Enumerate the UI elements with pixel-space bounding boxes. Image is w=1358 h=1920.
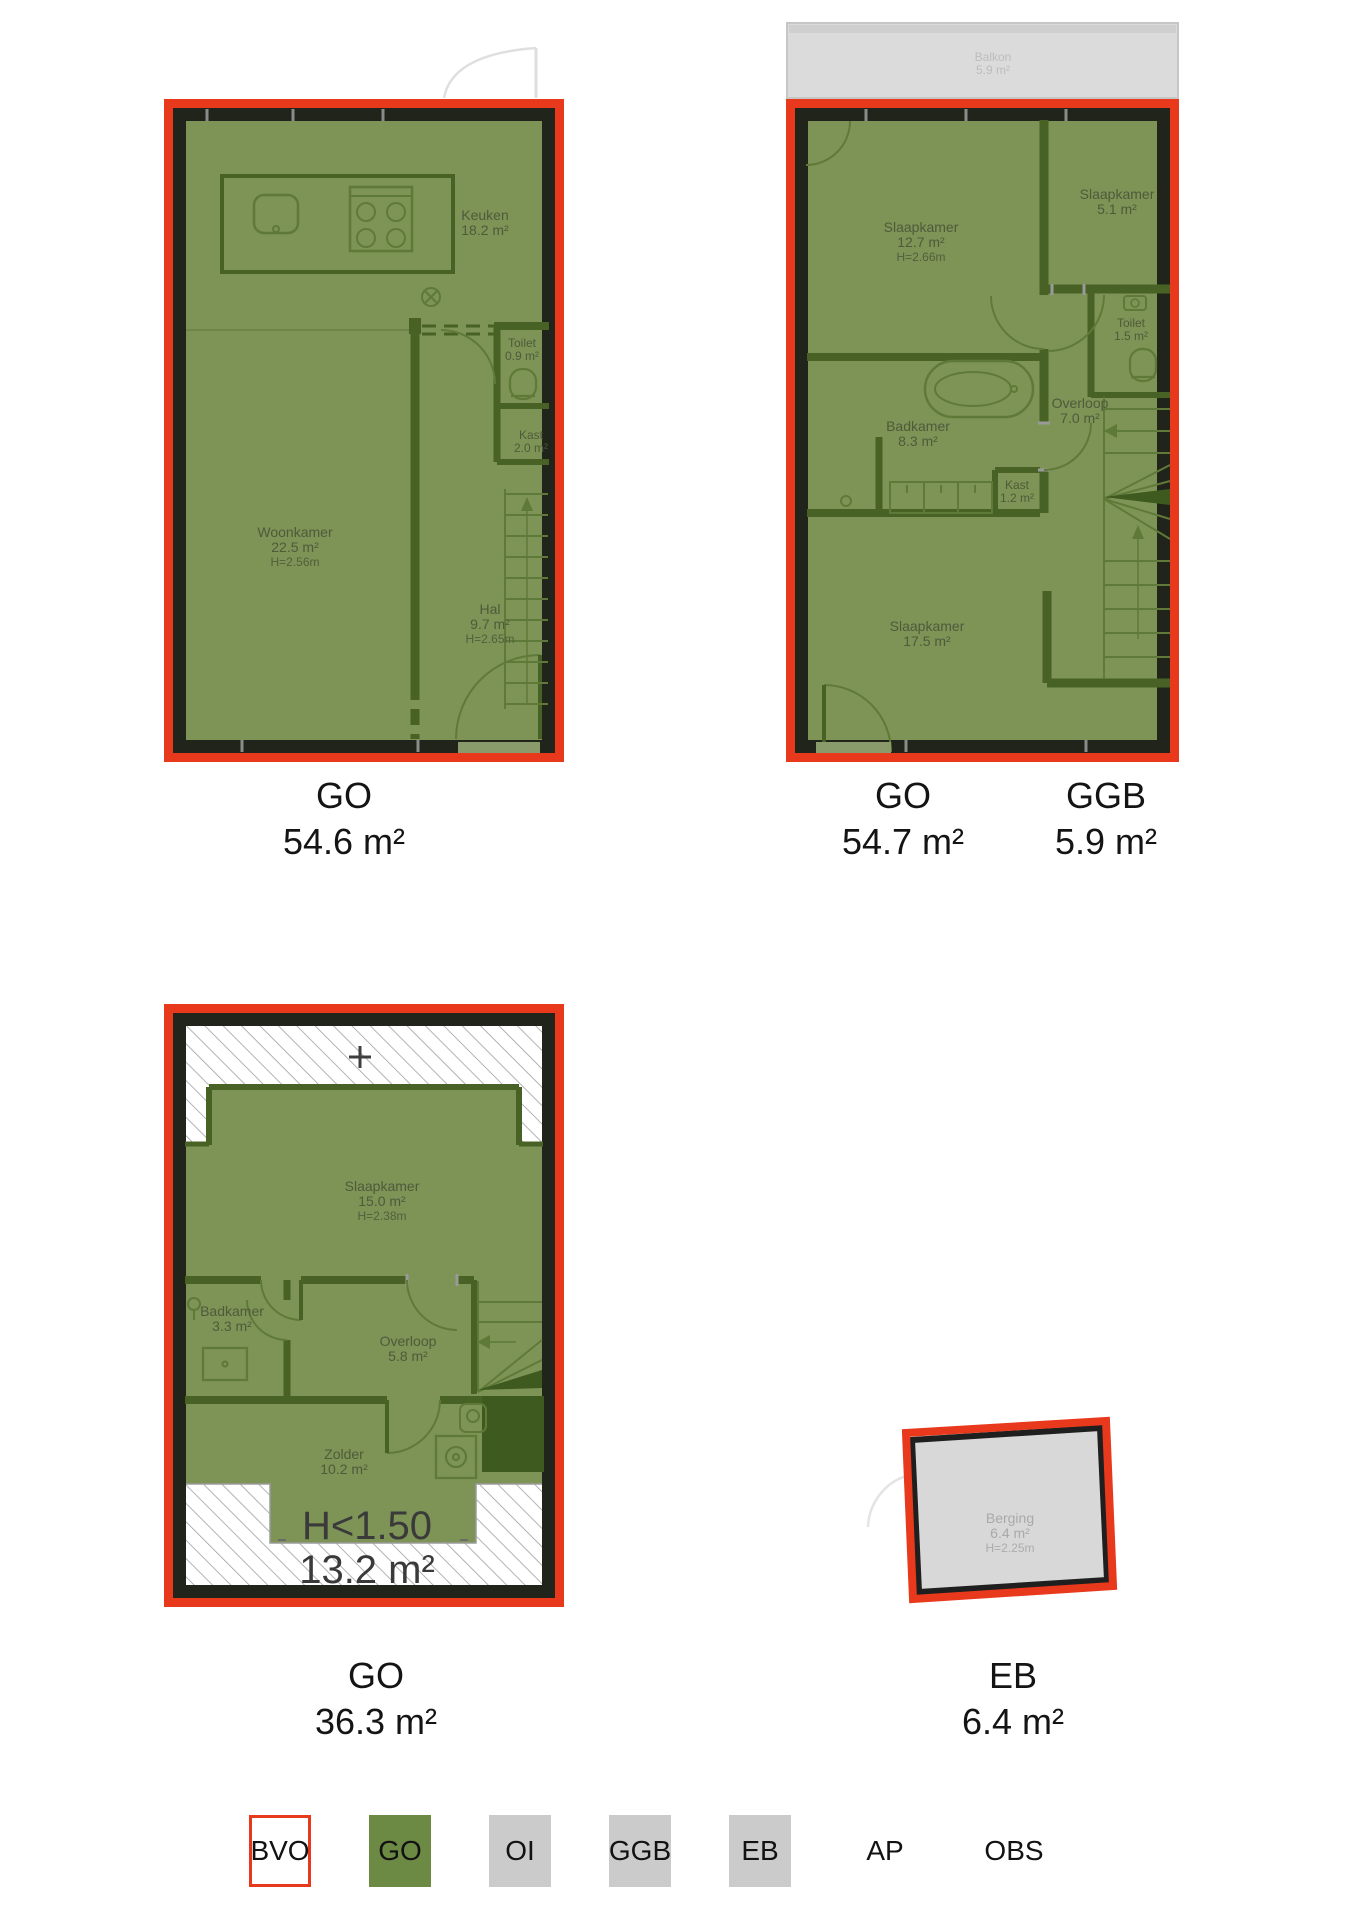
caption-code: EB bbox=[962, 1653, 1064, 1699]
door-arc-icon bbox=[438, 44, 558, 100]
room-label-slaapkamer3: Slaapkamer 17.5 m² bbox=[890, 619, 965, 649]
low-headroom-area: 13.2 m² bbox=[299, 1548, 435, 1592]
room-area: 7.0 m² bbox=[1052, 411, 1109, 426]
room-ceiling-height: H=2.56m bbox=[257, 555, 332, 570]
caption-storage: EB 6.4 m² bbox=[962, 1653, 1064, 1745]
room-name: Badkamer bbox=[886, 419, 950, 434]
legend-label: OBS bbox=[984, 1835, 1043, 1867]
room-label-toilet: Toilet 0.9 m² bbox=[505, 337, 539, 363]
room-name: Zolder bbox=[320, 1447, 367, 1462]
room-label-toilet: Toilet 1.5 m² bbox=[1114, 317, 1148, 343]
room-name: Slaapkamer bbox=[345, 1179, 420, 1194]
legend-label: EB bbox=[741, 1835, 778, 1867]
room-ceiling-height: H=2.65m bbox=[465, 632, 514, 647]
caption-area: 6.4 m² bbox=[962, 1699, 1064, 1745]
caption-area: 36.3 m² bbox=[315, 1699, 437, 1745]
room-area: 15.0 m² bbox=[345, 1194, 420, 1209]
stairwell-opening bbox=[482, 1396, 544, 1472]
room-name: Overloop bbox=[1052, 396, 1109, 411]
room-area: 5.1 m² bbox=[1080, 202, 1155, 217]
room-area: 22.5 m² bbox=[257, 540, 332, 555]
room-name: Overloop bbox=[380, 1334, 437, 1349]
room-name: Hal bbox=[465, 602, 514, 617]
floorplan-ground-floor: Keuken 18.2 m² Toilet 0.9 m² Kast 2.0 m²… bbox=[164, 99, 564, 762]
legend-item-ggb: GGB bbox=[609, 1815, 671, 1887]
room-label-keuken: Keuken 18.2 m² bbox=[461, 208, 508, 238]
floorplan-storage: Berging 6.4 m² H=2.25m bbox=[860, 1415, 1130, 1610]
room-area: 9.7 m² bbox=[465, 617, 514, 632]
legend-item-eb: EB bbox=[729, 1815, 791, 1887]
room-area: 12.7 m² bbox=[884, 235, 959, 250]
room-label-slaapkamer2: Slaapkamer 5.1 m² bbox=[1080, 187, 1155, 217]
caption-area: 54.6 m² bbox=[283, 819, 405, 865]
room-name: Slaapkamer bbox=[1080, 187, 1155, 202]
legend-label: GGB bbox=[609, 1835, 671, 1867]
room-area: 5.8 m² bbox=[380, 1349, 437, 1364]
room-area: 1.5 m² bbox=[1114, 330, 1148, 343]
room-label-badkamer: Badkamer 3.3 m² bbox=[200, 1304, 264, 1334]
room-area: 3.3 m² bbox=[200, 1319, 264, 1334]
room-label-badkamer: Badkamer 8.3 m² bbox=[886, 419, 950, 449]
room-label-slaapkamer: Slaapkamer 15.0 m² H=2.38m bbox=[345, 1179, 420, 1224]
balcony-area: Balkon 5.9 m² bbox=[786, 22, 1179, 99]
room-name: Keuken bbox=[461, 208, 508, 223]
room-label-berging: Berging 6.4 m² H=2.25m bbox=[985, 1511, 1034, 1556]
room-area: 10.2 m² bbox=[320, 1462, 367, 1477]
room-name: Slaapkamer bbox=[884, 220, 959, 235]
room-label-kast: Kast 2.0 m² bbox=[514, 429, 548, 455]
room-area: 5.9 m² bbox=[975, 64, 1012, 77]
room-label-overloop: Overloop 7.0 m² bbox=[1052, 396, 1109, 426]
room-label-balkon: Balkon 5.9 m² bbox=[975, 51, 1012, 77]
room-label-slaapkamer1: Slaapkamer 12.7 m² H=2.66m bbox=[884, 220, 959, 265]
room-label-overloop: Overloop 5.8 m² bbox=[380, 1334, 437, 1364]
low-headroom-height: H<1.50 bbox=[299, 1504, 435, 1548]
floorplan-attic: Slaapkamer 15.0 m² H=2.38m Badkamer 3.3 … bbox=[164, 1004, 564, 1607]
legend-item-oi: OI bbox=[489, 1815, 551, 1887]
caption-code: GO bbox=[315, 1653, 437, 1699]
caption-code: GO bbox=[842, 773, 964, 819]
room-area: 2.0 m² bbox=[514, 442, 548, 455]
room-name: Badkamer bbox=[200, 1304, 264, 1319]
legend-label: BVO bbox=[250, 1835, 309, 1867]
room-label-zolder: Zolder 10.2 m² bbox=[320, 1447, 367, 1477]
caption-area: 54.7 m² bbox=[842, 819, 964, 865]
entry-door-gap bbox=[458, 742, 540, 753]
room-name: Woonkamer bbox=[257, 525, 332, 540]
caption-attic: GO 36.3 m² bbox=[315, 1653, 437, 1745]
caption-code: GO bbox=[283, 773, 405, 819]
legend-item-obs: OBS bbox=[969, 1815, 1059, 1887]
caption-ground-floor: GO 54.6 m² bbox=[283, 773, 405, 865]
low-headroom-label: H<1.50 13.2 m² bbox=[299, 1504, 435, 1592]
room-area: 0.9 m² bbox=[505, 350, 539, 363]
caption-area: 5.9 m² bbox=[1055, 819, 1157, 865]
room-area: 1.2 m² bbox=[1000, 492, 1034, 505]
legend-label: AP bbox=[866, 1835, 903, 1867]
room-label-kast: Kast 1.2 m² bbox=[1000, 479, 1034, 505]
caption-first-floor-ggb: GGB 5.9 m² bbox=[1055, 773, 1157, 865]
room-name: Berging bbox=[985, 1511, 1034, 1526]
room-ceiling-height: H=2.66m bbox=[884, 250, 959, 265]
room-ceiling-height: H=2.38m bbox=[345, 1209, 420, 1224]
legend-item-ap: AP bbox=[849, 1815, 921, 1887]
room-area: 8.3 m² bbox=[886, 434, 950, 449]
room-label-woonkamer: Woonkamer 22.5 m² H=2.56m bbox=[257, 525, 332, 570]
room-area: 18.2 m² bbox=[461, 223, 508, 238]
caption-first-floor-go: GO 54.7 m² bbox=[842, 773, 964, 865]
caption-code: GGB bbox=[1055, 773, 1157, 819]
door-arc-icon bbox=[868, 1475, 909, 1527]
room-ceiling-height: H=2.25m bbox=[985, 1541, 1034, 1556]
room-area: 6.4 m² bbox=[985, 1526, 1034, 1541]
floorplan-drawing-ground-floor bbox=[164, 99, 564, 762]
door-gap bbox=[816, 742, 891, 753]
legend-item-go: GO bbox=[369, 1815, 431, 1887]
floorplan-first-floor: Slaapkamer 12.7 m² H=2.66m Slaapkamer 5.… bbox=[786, 99, 1179, 762]
room-label-hal: Hal 9.7 m² H=2.65m bbox=[465, 602, 514, 647]
legend-label: GO bbox=[378, 1835, 422, 1867]
legend-item-bvo: BVO bbox=[249, 1815, 311, 1887]
legend-label: OI bbox=[505, 1835, 535, 1867]
floorplan-sheet: Keuken 18.2 m² Toilet 0.9 m² Kast 2.0 m²… bbox=[0, 0, 1358, 1920]
room-name: Slaapkamer bbox=[890, 619, 965, 634]
room-area: 17.5 m² bbox=[890, 634, 965, 649]
